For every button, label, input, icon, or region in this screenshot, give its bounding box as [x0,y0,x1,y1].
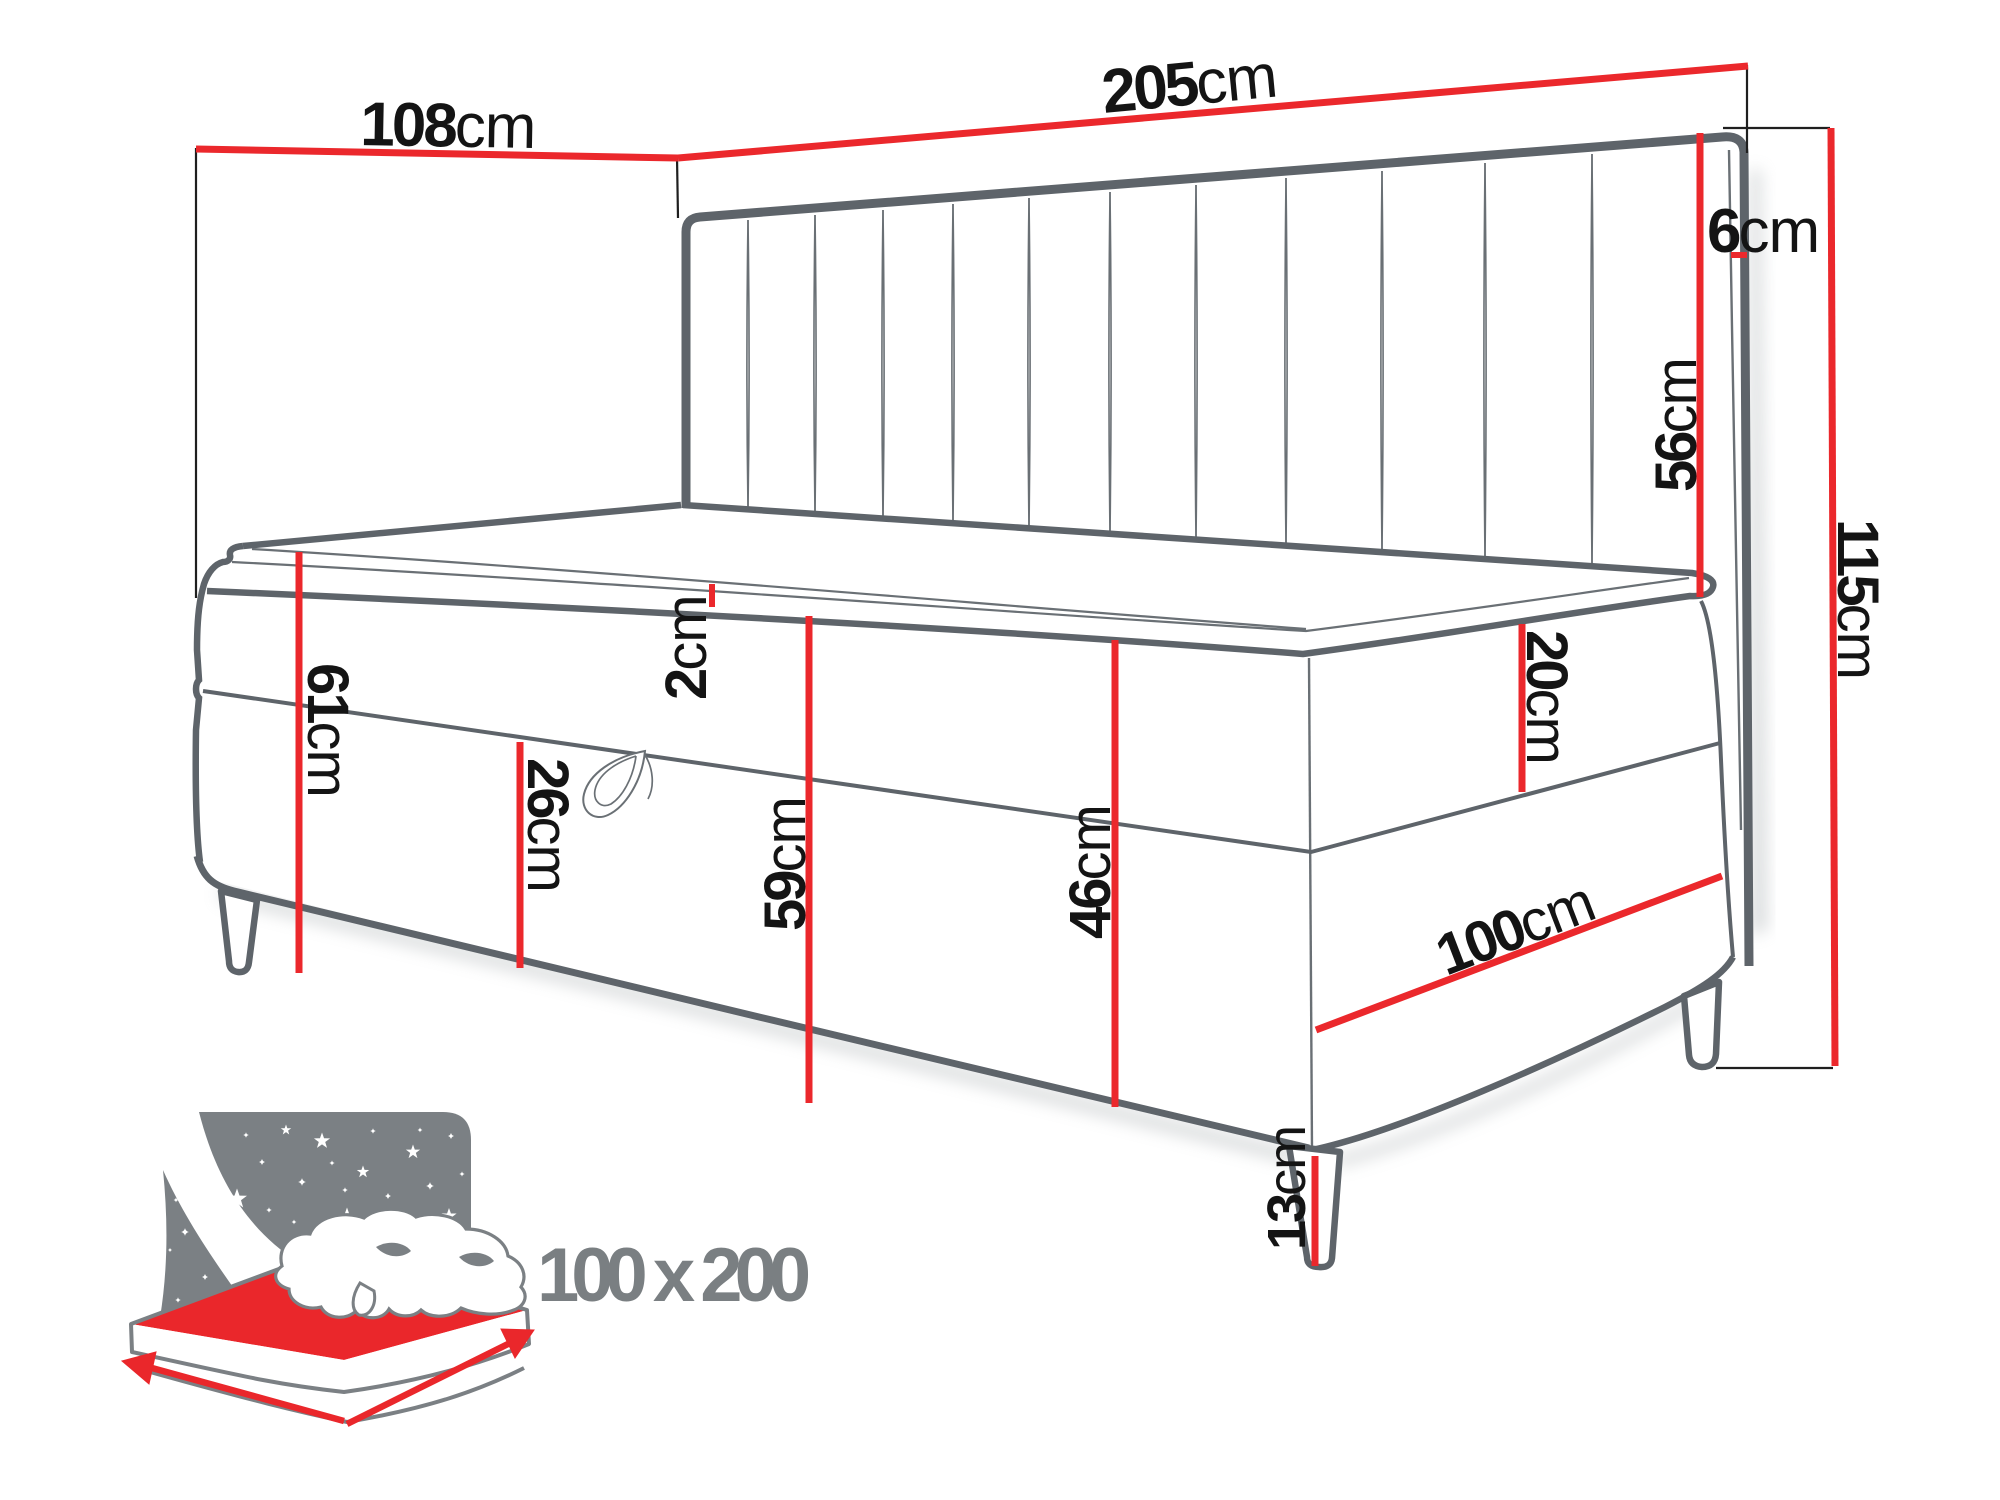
svg-text:56cm: 56cm [1644,358,1709,492]
svg-text:61cm: 61cm [295,663,360,797]
svg-text:205cm: 205cm [1099,41,1280,126]
svg-text:13cm: 13cm [1257,1126,1317,1250]
svg-text:2cm: 2cm [654,595,719,700]
svg-text:100 x 200: 100 x 200 [537,1233,809,1318]
svg-text:59cm: 59cm [753,797,818,931]
svg-text:6cm: 6cm [1707,197,1819,266]
svg-text:115cm: 115cm [1825,519,1890,679]
svg-text:26cm: 26cm [515,758,580,892]
svg-text:20cm: 20cm [1514,630,1579,764]
svg-text:46cm: 46cm [1058,805,1123,939]
svg-text:108cm: 108cm [360,90,536,162]
